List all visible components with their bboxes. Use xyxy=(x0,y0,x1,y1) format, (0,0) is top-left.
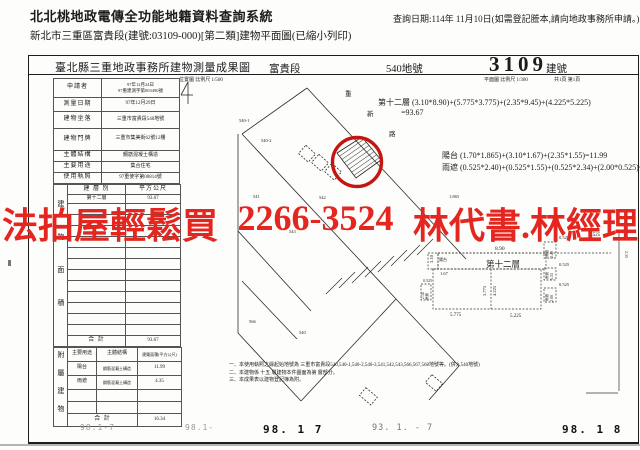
svg-text:新: 新 xyxy=(367,109,374,118)
svg-text:5.225: 5.225 xyxy=(510,314,522,319)
street-name-chars: 重 新 路 xyxy=(345,90,396,138)
svg-text:540-1: 540-1 xyxy=(239,118,250,123)
north-arrow-icon xyxy=(181,82,193,104)
scan-artifact xyxy=(8,260,11,266)
svg-text:3.775: 3.775 xyxy=(482,285,487,296)
date-stamp: 98. 1 7 xyxy=(263,423,323,436)
date-stamp-faint: 98.1-7 xyxy=(80,423,115,432)
system-title: 北北桃地政電傳全功能地籍資料查詢系統 xyxy=(30,6,273,25)
svg-text:4.225: 4.225 xyxy=(492,285,497,296)
svg-text:3.10: 3.10 xyxy=(429,254,434,263)
svg-text:540-2: 540-2 xyxy=(261,138,272,143)
floor-plan-outline xyxy=(421,231,619,393)
svg-text:0.525: 0.525 xyxy=(559,282,570,287)
svg-text:0.525: 0.525 xyxy=(559,262,570,267)
svg-text:陽台: 陽台 xyxy=(439,256,447,262)
watermark-text-left: 法拍屋輕鬆買 xyxy=(2,197,218,249)
advertisement-watermark: 法拍屋輕鬆買 2266-3524 林代書.林經理 xyxy=(0,197,640,249)
svg-text:2.40: 2.40 xyxy=(549,251,554,258)
svg-text:1.55: 1.55 xyxy=(549,273,554,280)
svg-text:540: 540 xyxy=(299,330,307,335)
svg-text:雨遮: 雨遮 xyxy=(424,293,429,301)
date-stamp-faint: 98.1- xyxy=(185,423,214,432)
svg-text:2.00: 2.00 xyxy=(549,295,554,302)
svg-text:2.35: 2.35 xyxy=(624,251,629,258)
svg-text:1.67: 1.67 xyxy=(440,271,449,276)
query-date-note: 查詢日期:114年 11月10日(如需登記謄本,請向地政事務所申請。) xyxy=(393,12,639,25)
watermark-phone-number: 2266-3524 xyxy=(238,197,394,249)
survey-result-sheet: 臺北縣三重地政事務所建物測量成果圖 富貴段 540地號 3109 建號 位置圖 … xyxy=(28,55,639,445)
svg-text:566: 566 xyxy=(249,319,257,324)
document-subtitle: 新北市三重區富貴段(建號:03109-000)[第二類]建物平面圖(已縮小列印) xyxy=(30,28,351,43)
date-stamp-faint: 93. 1. - 7 xyxy=(372,423,433,433)
svg-text:0.525: 0.525 xyxy=(423,278,432,283)
scan-edge-line xyxy=(0,444,640,446)
svg-text:路: 路 xyxy=(389,129,396,138)
floor-plan-title: 第十二層 xyxy=(486,259,520,269)
watermark-text-right: 林代書.林經理 xyxy=(413,197,638,249)
cadastral-drawing: 重 新 路 540-1 540-2 541 542 543 566 540 xyxy=(29,56,638,442)
date-stamp: 98. 1 8 xyxy=(562,423,622,436)
svg-text:5.775: 5.775 xyxy=(450,313,462,318)
svg-text:重: 重 xyxy=(345,90,352,98)
